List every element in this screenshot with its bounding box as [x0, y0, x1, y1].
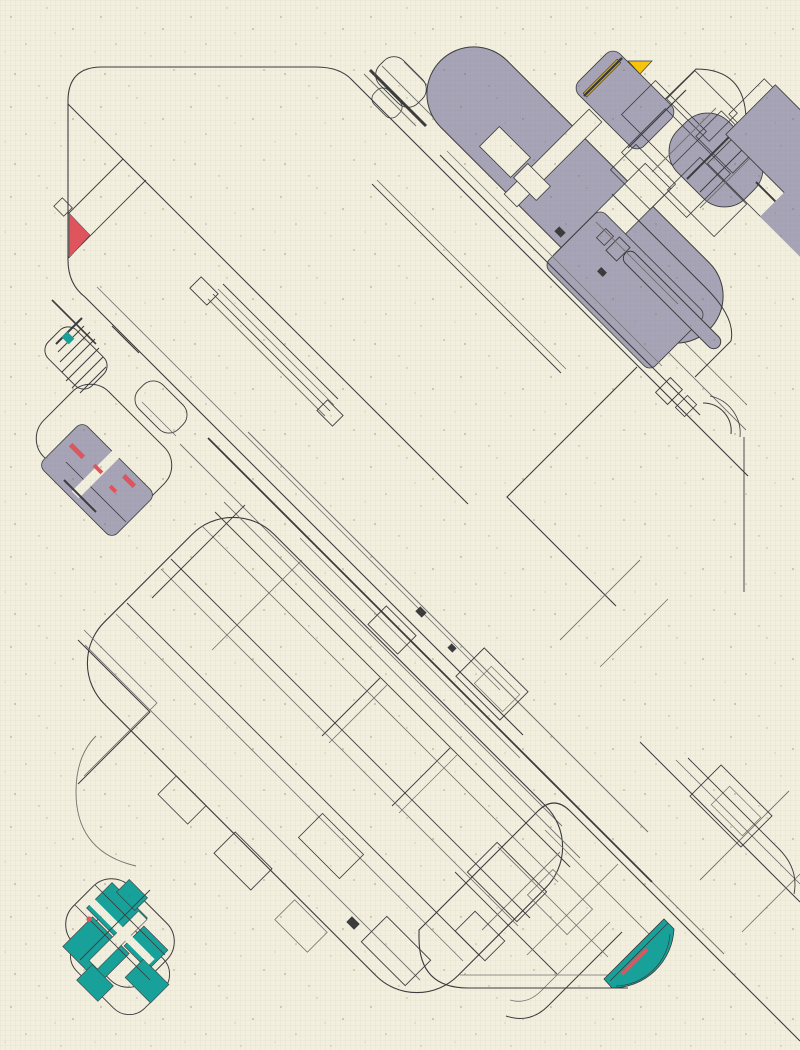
paper-speckle-texture: [0, 0, 800, 1050]
artwork-page: [0, 0, 800, 1050]
artwork-canvas: [0, 0, 800, 1050]
